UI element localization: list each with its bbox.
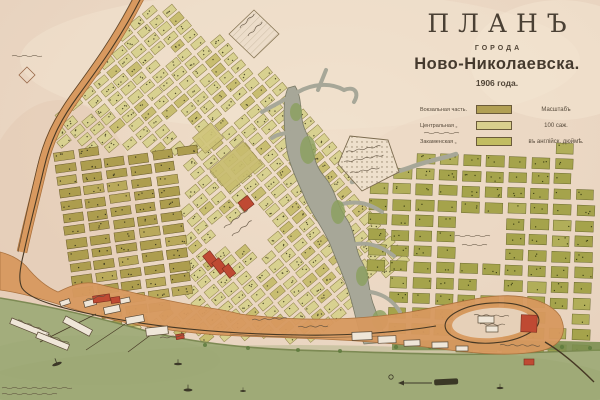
scale-unit: въ англійск. дюймѣ. bbox=[516, 139, 596, 145]
legend-swatch bbox=[476, 137, 512, 146]
legend-label: Закаменская „ bbox=[420, 139, 476, 145]
legend-row: Вокзальная часть. Масштабъ bbox=[420, 103, 596, 116]
map-city-name: Ново-Николаевска. bbox=[398, 55, 596, 73]
map-canvas: ПЛАНЪ ГОРОДА Ново-Николаевска. 1906 года… bbox=[0, 0, 600, 400]
map-year: 1906 года. bbox=[398, 79, 596, 88]
map-title-block: ПЛАНЪ ГОРОДА Ново-Николаевска. 1906 года… bbox=[398, 10, 596, 89]
scale-title: Масштабъ bbox=[516, 107, 596, 113]
legend-label: Вокзальная часть. bbox=[420, 107, 476, 113]
legend-row: Закаменская „ въ англійск. дюймѣ. bbox=[420, 135, 596, 148]
legend-label: Центральная „ bbox=[420, 123, 476, 129]
map-title: ПЛАНЪ bbox=[398, 10, 596, 38]
legend-row: Центральная „ 100 саж. bbox=[420, 119, 596, 132]
map-legend: Вокзальная часть. Масштабъ Центральная „… bbox=[420, 103, 596, 151]
legend-swatch bbox=[476, 121, 512, 130]
map-subtitle: ГОРОДА bbox=[398, 45, 596, 53]
scale-value: 100 саж. bbox=[516, 123, 596, 129]
legend-swatch bbox=[476, 105, 512, 114]
